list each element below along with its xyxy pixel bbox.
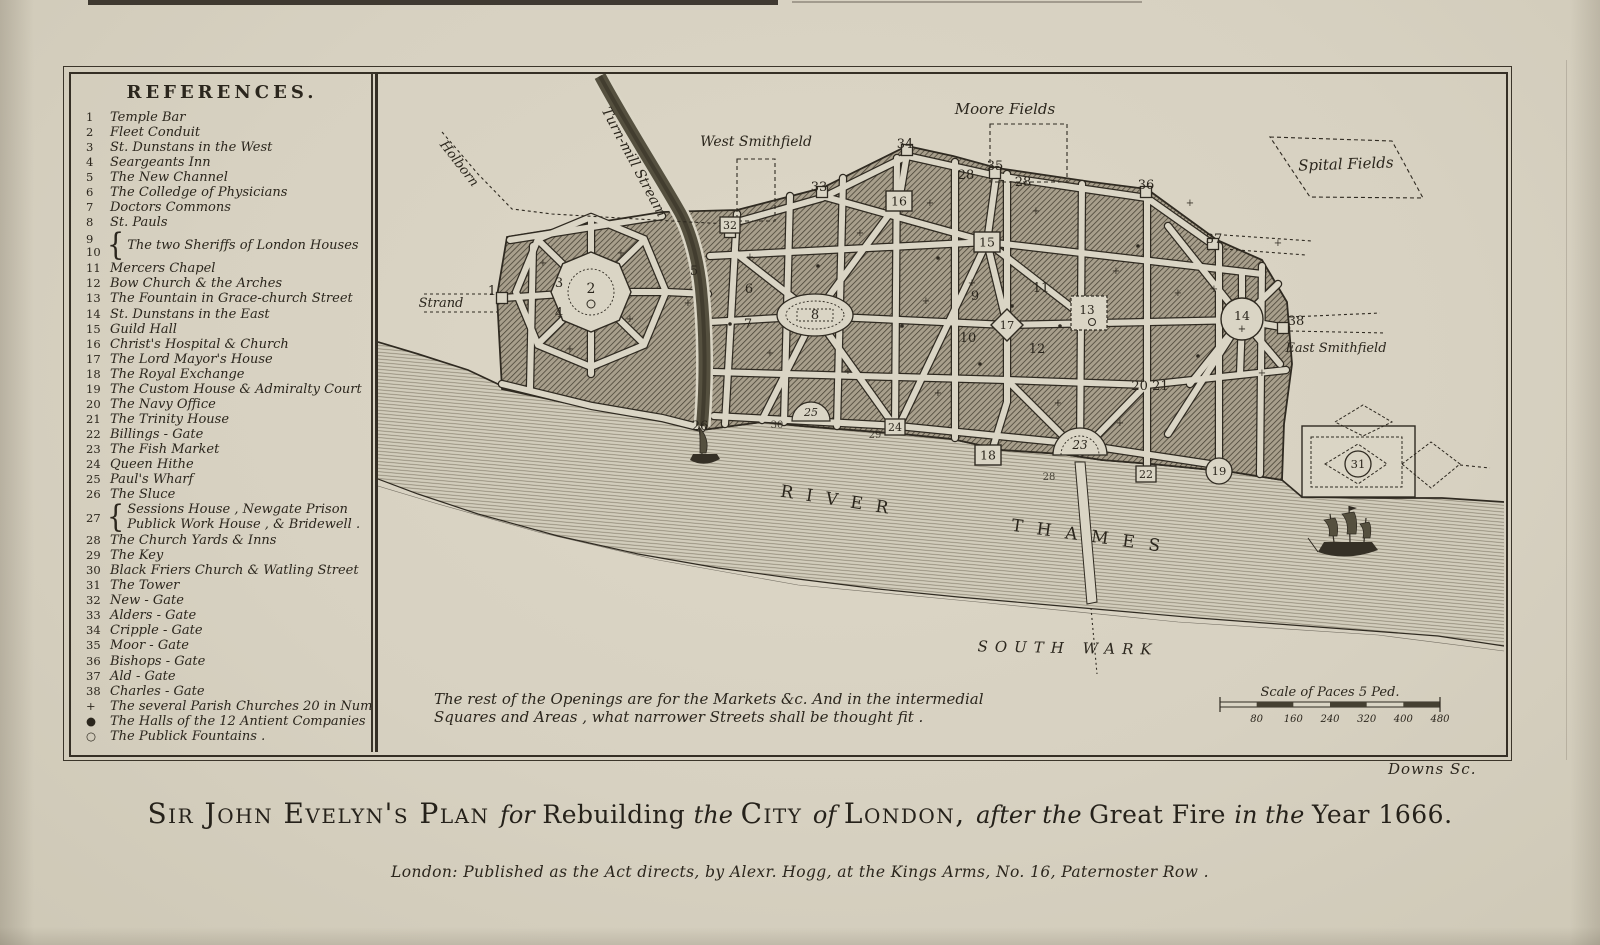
svg-text:+: +: [539, 258, 547, 269]
map-marker-37: 37: [1206, 232, 1223, 247]
map-marker-33: 33: [811, 180, 828, 195]
title-segment-0: Sir John Evelyn's Plan: [147, 797, 499, 830]
svg-text:36: 36: [1138, 178, 1155, 193]
scale-tick-400: 400: [1393, 714, 1414, 725]
svg-text:28: 28: [1043, 472, 1056, 483]
map-marker-5: 5: [690, 264, 698, 279]
svg-text:16: 16: [891, 194, 907, 209]
reference-item-21: 21The Trinity House: [73, 412, 371, 427]
reference-item-23: 23The Fish Market: [73, 442, 371, 457]
reference-item-3: 3St. Dunstans in the West: [73, 140, 371, 155]
scale-bar: Scale of Paces 5 Ped.80160240320400480: [1220, 685, 1450, 725]
reference-item-6: 6The Colledge of Physicians: [73, 185, 371, 200]
references-panel: REFERENCES. 1Temple Bar2Fleet Conduit3St…: [73, 75, 371, 751]
map-label-strand: Strand: [419, 296, 464, 311]
reference-item-17: 17The Lord Mayor's House: [73, 352, 371, 367]
svg-text:9: 9: [971, 289, 979, 304]
map-marker-26: 26: [692, 419, 709, 434]
map-marker-9: 9: [971, 289, 979, 304]
svg-text:+: +: [626, 314, 634, 325]
reference-item-27: 27{Sessions House , Newgate PrisonPublic…: [73, 502, 371, 533]
svg-text:20 21: 20 21: [1131, 379, 1168, 394]
title-segment-1: for: [500, 801, 542, 829]
map-marker-35: 35: [987, 159, 1004, 174]
svg-text:+: +: [1238, 324, 1246, 335]
reference-item-2: 2Fleet Conduit: [73, 125, 371, 140]
svg-text:37: 37: [1206, 232, 1223, 247]
reference-item-37: 37Ald - Gate: [73, 669, 371, 684]
svg-text:14: 14: [1234, 308, 1250, 323]
scale-tick-160: 160: [1284, 714, 1304, 725]
title-segment-4: City: [741, 797, 813, 830]
map-marker-7: 7: [744, 317, 752, 332]
svg-text:+: +: [1274, 238, 1282, 249]
svg-text:25: 25: [803, 406, 818, 419]
references-list: 1Temple Bar2Fleet Conduit3St. Dunstans i…: [73, 110, 371, 744]
map-marker-1: 1: [488, 284, 496, 299]
reference-item-4: 4Seargeants Inn: [73, 155, 371, 170]
reference-item-34: 34Cripple - Gate: [73, 623, 371, 638]
map-marker-6: 6: [745, 282, 753, 297]
map-marker-34: 34: [897, 137, 914, 152]
svg-text:7: 7: [744, 317, 752, 332]
svg-text:34: 34: [897, 137, 914, 152]
svg-text:31: 31: [1351, 457, 1366, 471]
title-segment-2: Rebuilding: [542, 800, 693, 829]
reference-item-38: 38Charles - Gate: [73, 684, 371, 699]
reference-item-13: 13The Fountain in Grace-church Street: [73, 291, 371, 306]
svg-text:12: 12: [1029, 342, 1046, 357]
reference-item-19: 19The Custom House & Admiralty Court: [73, 382, 371, 397]
title-segment-3: the: [694, 801, 741, 829]
svg-text:+: +: [856, 228, 864, 239]
svg-text:28: 28: [958, 168, 975, 183]
reference-item-12: 12Bow Church & the Arches: [73, 276, 371, 291]
map-label-holborn: Holborn: [436, 137, 482, 190]
svg-text:22: 22: [1139, 468, 1153, 481]
svg-text:13: 13: [1079, 303, 1094, 317]
svg-text:15: 15: [979, 235, 995, 250]
reference-item-25: 25Paul's Wharf: [73, 472, 371, 487]
reference-item-36: 36Bishops - Gate: [73, 654, 371, 669]
map-label-east-smithfield: East Smithfield: [1284, 341, 1386, 356]
svg-text:+: +: [566, 344, 574, 355]
map-marker-24: 24: [885, 419, 905, 435]
publisher-imprint: London: Published as the Act directs, by…: [0, 863, 1600, 881]
reference-item-20: 20The Navy Office: [73, 397, 371, 412]
references-title: REFERENCES.: [73, 82, 371, 103]
engraving-page: REFERENCES. 1Temple Bar2Fleet Conduit3St…: [0, 0, 1600, 945]
svg-text:1: 1: [488, 284, 496, 299]
reference-item-15: 15Guild Hall: [73, 322, 371, 337]
scale-tick-80: 80: [1250, 714, 1263, 725]
svg-text:+: +: [1116, 418, 1124, 429]
reference-item-11: 11Mercers Chapel: [73, 261, 371, 276]
svg-text:28: 28: [1015, 175, 1032, 190]
reference-item-33: 33Alders - Gate: [73, 608, 371, 623]
reference-item-22: 22Billings - Gate: [73, 427, 371, 442]
reference-item-31: 31The Tower: [73, 578, 371, 593]
title-segment-8: Great Fire: [1089, 800, 1234, 829]
svg-text:30: 30: [771, 420, 784, 431]
map-marker-28: 28: [958, 168, 975, 183]
svg-text:35: 35: [987, 159, 1004, 174]
svg-text:+: +: [1258, 368, 1266, 379]
svg-text:+: +: [844, 366, 852, 377]
svg-text:+: +: [1174, 288, 1182, 299]
title-segment-9: in the: [1234, 801, 1312, 829]
map-marker-32: 32: [720, 217, 740, 233]
map-marker-13: 13: [1071, 296, 1107, 330]
map-marker-28: 28: [1043, 472, 1056, 483]
title-segment-5: of: [813, 801, 844, 829]
map-marker-10: 10: [960, 331, 977, 346]
svg-text:33: 33: [811, 180, 828, 195]
map-marker-12: 12: [1029, 342, 1046, 357]
map-marker-31: 31: [1345, 451, 1371, 477]
svg-text:+: +: [684, 298, 692, 309]
reference-item-32: 32New - Gate: [73, 593, 371, 608]
svg-text:5: 5: [690, 264, 698, 279]
svg-text:17: 17: [1000, 318, 1015, 332]
svg-text:+: +: [968, 278, 976, 289]
map-marker-15: 15: [974, 232, 1000, 252]
svg-text:+: +: [926, 198, 934, 209]
svg-text:24: 24: [888, 421, 902, 434]
svg-text:38: 38: [1288, 314, 1305, 329]
map-label-west-smithfield: West Smithfield: [700, 134, 812, 150]
svg-text:+: +: [1054, 398, 1062, 409]
map-marker-22: 22: [1136, 466, 1156, 482]
scale-tick-480: 480: [1429, 714, 1450, 725]
map-marker-14: 14+: [1221, 298, 1263, 340]
reference-item-1: 1Temple Bar: [73, 110, 371, 125]
svg-text:2: 2: [587, 281, 596, 297]
reference-item-35: 35Moor - Gate: [73, 638, 371, 653]
reference-item-14: 14St. Dunstans in the East: [73, 307, 371, 322]
map-marker-30: 30: [771, 420, 784, 431]
title-segment-7: after the: [976, 801, 1089, 829]
svg-text:+: +: [617, 248, 625, 259]
map-note: The rest of the Openings are for the Mar…: [434, 690, 984, 726]
reference-item-●: ●The Halls of the 12 Antient Companies .: [73, 714, 371, 729]
engraver-signature: Downs Sc.: [1388, 760, 1476, 778]
note-line-1: The rest of the Openings are for the Mar…: [434, 690, 984, 708]
svg-text:+: +: [922, 296, 930, 307]
title-segment-6: London,: [844, 797, 976, 830]
page-shadow-left: [0, 0, 34, 945]
map-label-southwark: SOUTH WARK: [977, 637, 1158, 658]
map-marker-3: 3: [555, 276, 563, 291]
map-marker-16: 16: [886, 191, 912, 211]
reference-item-7: 7Doctors Commons: [73, 200, 371, 215]
svg-text:4: 4: [555, 306, 563, 321]
svg-text:+: +: [766, 348, 774, 359]
map-marker-29: 29: [869, 430, 882, 441]
scan-edge-mark: [88, 0, 778, 5]
svg-text:+: +: [746, 252, 754, 263]
map-panel: ++++++++++++++++++++++123456789101112131…: [378, 74, 1504, 752]
scale-tick-320: 320: [1357, 714, 1377, 725]
svg-text:18: 18: [980, 448, 996, 463]
svg-text:32: 32: [723, 219, 737, 232]
page-fold-line: [1566, 60, 1567, 760]
note-line-2: Squares and Areas , what narrower Street…: [434, 708, 923, 726]
reference-item-30: 30Black Friers Church & Watling Street: [73, 563, 371, 578]
reference-item-○: ○The Publick Fountains .: [73, 729, 371, 744]
map-marker-38: 38: [1288, 314, 1305, 329]
svg-text:11: 11: [1033, 281, 1050, 296]
svg-text:26: 26: [692, 419, 709, 434]
title-segment-10: Year 1666.: [1312, 800, 1453, 829]
map-marker-19: 19: [1206, 458, 1232, 484]
scan-edge-mark-2: [792, 1, 1142, 3]
reference-item-+: +The several Parish Churches 20 in Numbe…: [73, 699, 371, 714]
map-label-spital-fields: Spital Fields: [1298, 153, 1394, 174]
map-marker-11: 11: [1033, 281, 1050, 296]
reference-item-29: 29The Key: [73, 548, 371, 563]
map-marker-4: 4: [555, 306, 563, 321]
reference-item-18: 18The Royal Exchange: [73, 367, 371, 382]
svg-text:+: +: [1186, 198, 1194, 209]
svg-text:+: +: [1032, 206, 1040, 217]
svg-text:6: 6: [745, 282, 753, 297]
reference-item-24: 24Queen Hithe: [73, 457, 371, 472]
scale-caption: Scale of Paces 5 Ped.: [1260, 685, 1399, 700]
reference-item-28: 28The Church Yards & Inns: [73, 533, 371, 548]
map-label-moore-fields: Moore Fields: [954, 100, 1056, 118]
svg-text:+: +: [1210, 284, 1218, 295]
svg-text:10: 10: [960, 331, 977, 346]
reference-item-5: 5The New Channel: [73, 170, 371, 185]
svg-text:+: +: [934, 388, 942, 399]
map-canvas: ++++++++++++++++++++++123456789101112131…: [378, 74, 1504, 752]
svg-text:3: 3: [555, 276, 563, 291]
svg-text:23: 23: [1071, 438, 1088, 452]
svg-text:29: 29: [869, 430, 882, 441]
reference-item-9: 910{The two Sheriffs of London Houses: [73, 230, 371, 261]
svg-text:8: 8: [811, 308, 819, 323]
map-marker-20-21: 20 21: [1131, 379, 1168, 394]
page-shadow-right: [1570, 0, 1600, 945]
svg-text:19: 19: [1212, 464, 1227, 478]
map-marker-8: 8: [777, 294, 853, 336]
panel-divider: [371, 73, 373, 752]
map-marker-18: 18: [975, 445, 1001, 465]
page-shadow-bottom: [0, 927, 1600, 945]
map-marker-36: 36: [1138, 178, 1155, 193]
svg-text:+: +: [1112, 266, 1120, 277]
scale-tick-240: 240: [1319, 714, 1340, 725]
map-marker-28: 28: [1015, 175, 1032, 190]
tower-of-london: [1302, 405, 1460, 497]
map-title: Sir John Evelyn's Plan for Rebuilding th…: [0, 797, 1600, 830]
reference-item-16: 16Christ's Hospital & Church: [73, 337, 371, 352]
